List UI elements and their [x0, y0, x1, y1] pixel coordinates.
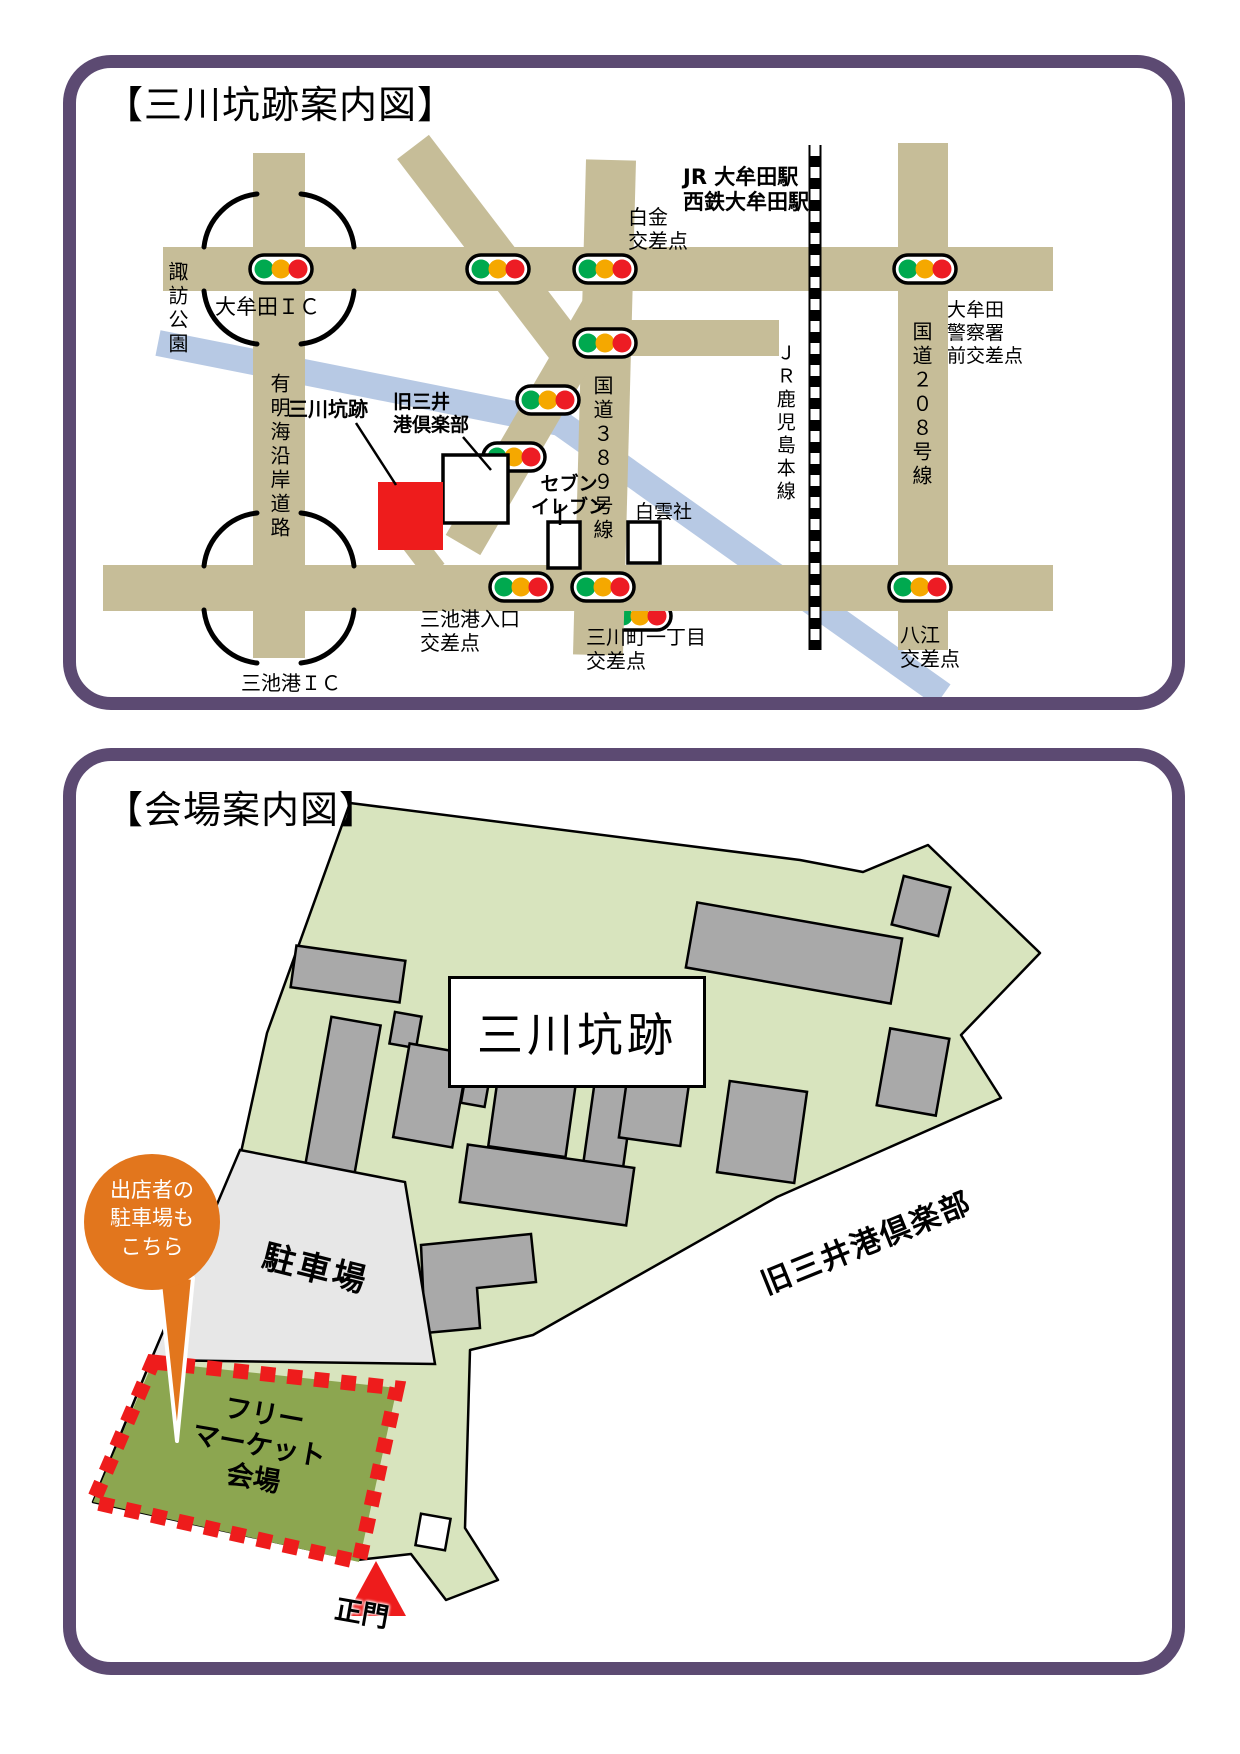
building	[877, 1028, 950, 1115]
hakuunsha-label: 白雲社	[635, 501, 692, 524]
building	[892, 876, 951, 936]
access-map-panel: 【三川坑跡案内図】 JR 大牟田駅 西鉄大牟田駅 白金 交差点 諏訪公園 大牟田…	[63, 55, 1185, 710]
traffic-signal-icon	[467, 255, 529, 283]
gate-booth	[415, 1514, 450, 1551]
mikawa-pit-marker	[378, 482, 443, 550]
miike-port-entrance-label: 三池港入口 交差点	[420, 607, 520, 655]
police-front-crossing-label: 大牟田 警察署 前交差点	[947, 299, 1023, 367]
hakuunsha-building	[628, 522, 660, 563]
access-map-title: 【三川坑跡案内図】	[105, 83, 456, 129]
traffic-signal-icon	[574, 329, 636, 357]
omuta-ic-label: 大牟田ＩＣ	[215, 295, 320, 320]
balloon-label: 出店者の 駐車場も こちら	[89, 1176, 215, 1261]
traffic-signal-icon	[894, 255, 956, 283]
jr-kagoshima-line-label: ＪＲ鹿児島本線	[773, 343, 796, 504]
kyu-mitsui-club-building	[443, 455, 508, 523]
route-389-label: 国道３８９号線	[590, 375, 614, 543]
traffic-signal-icon	[574, 255, 636, 283]
traffic-signal-icon	[889, 573, 951, 601]
mikawa-pit-label: 三川坑跡	[288, 397, 368, 421]
traffic-signal-icon	[490, 573, 552, 601]
traffic-signal-icon	[572, 573, 634, 601]
building	[389, 1012, 421, 1048]
miike-port-ic-label: 三池港ＩＣ	[241, 671, 341, 695]
site-name-box: 三川坑跡	[448, 976, 706, 1088]
access-map-drawing	[63, 55, 1185, 710]
venue-map-panel: 【会場案内図】 三川坑跡 駐車場 フリー マーケット 会場 旧三井港倶楽部 正門…	[63, 748, 1185, 1675]
site-name-label: 三川坑跡	[477, 999, 677, 1065]
station-label: JR 大牟田駅 西鉄大牟田駅	[683, 165, 809, 215]
route-208-label: 国道２０８号線	[909, 321, 933, 489]
mikawamachi-crossing-label: 三川町一丁目 交差点	[586, 625, 706, 673]
venue-map-title: 【会場案内図】	[105, 788, 378, 834]
yae-crossing-label: 八江 交差点	[900, 623, 960, 671]
suwa-park-label: 諏訪公園	[165, 261, 189, 357]
seven-eleven-building	[548, 522, 580, 568]
kyu-mitsui-club-label: 旧三井 港倶楽部	[393, 391, 469, 437]
venue-map-drawing	[63, 748, 1185, 1675]
traffic-signal-icon	[250, 255, 312, 283]
building	[717, 1081, 807, 1183]
traffic-signal-icon	[517, 386, 579, 414]
shirakane-crossing-label: 白金 交差点	[628, 205, 688, 253]
